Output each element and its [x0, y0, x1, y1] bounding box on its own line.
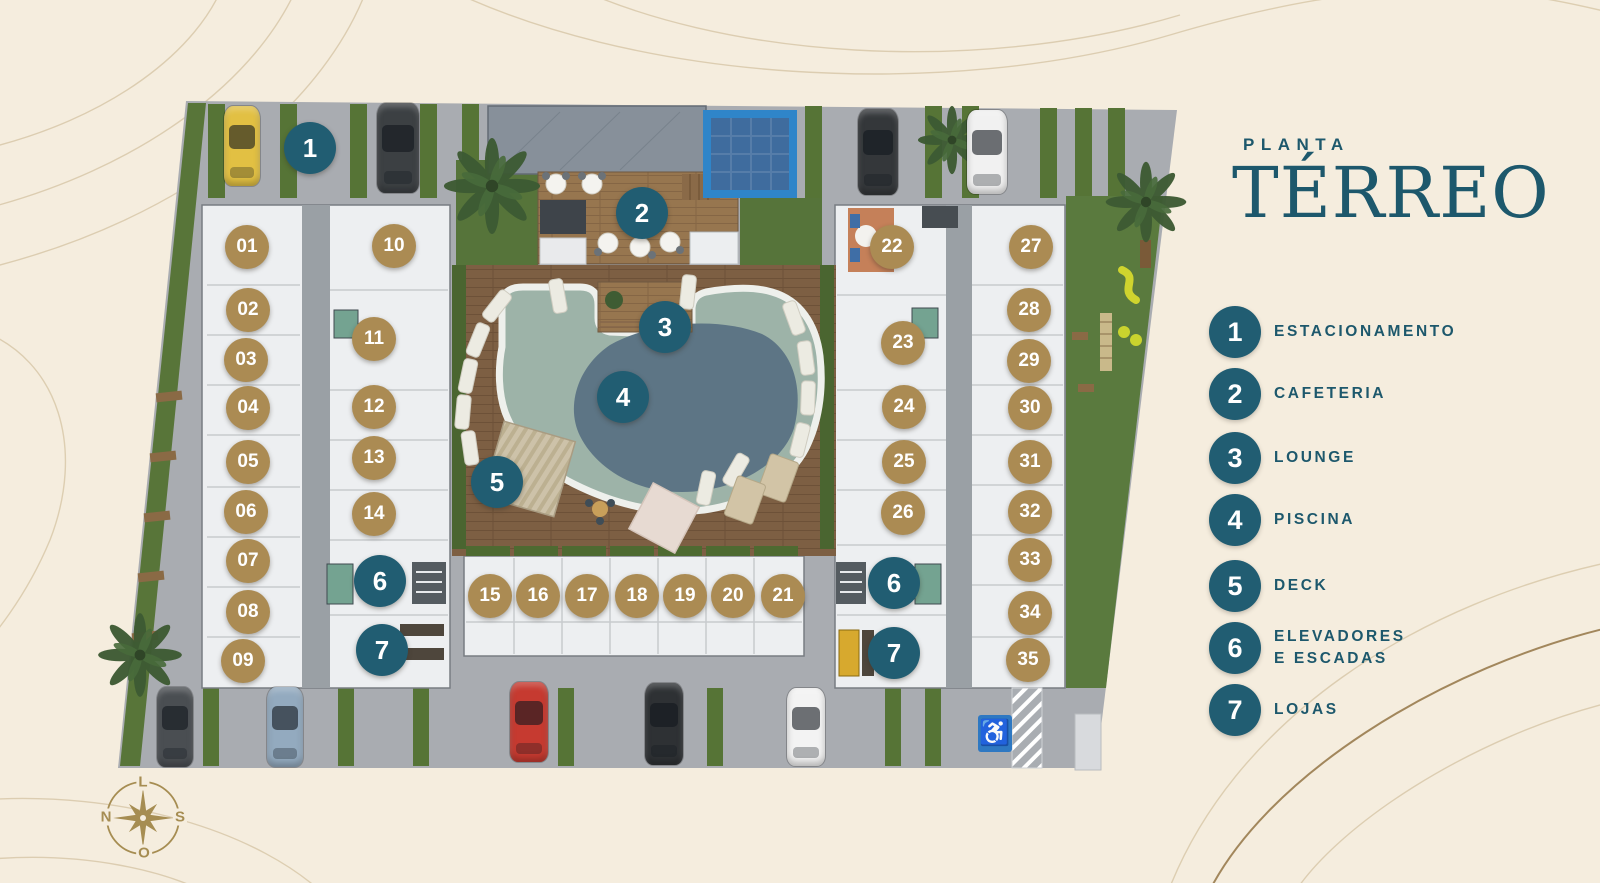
right-lawn: [1066, 196, 1163, 688]
accessible-parking-icon: ♿: [978, 715, 1012, 752]
legend-badge-4: 4: [1209, 494, 1261, 546]
amenity-marker-5-4: 5: [471, 456, 523, 508]
legend-badge-5: 5: [1209, 560, 1261, 612]
unit-marker-15: 15: [468, 574, 512, 618]
unit-marker-22: 22: [870, 225, 914, 269]
compass-rose: [107, 782, 179, 854]
unit-marker-25: 25: [882, 440, 926, 484]
page-title: TÉRREO: [1232, 157, 1550, 231]
unit-marker-27: 27: [1009, 225, 1053, 269]
unit-marker-26: 26: [881, 491, 925, 535]
unit-marker-16: 16: [516, 574, 560, 618]
unit-marker-13: 13: [352, 436, 396, 480]
unit-marker-28: 28: [1007, 288, 1051, 332]
legend-label-5: DECK: [1274, 575, 1328, 597]
unit-marker-33: 33: [1008, 538, 1052, 582]
car-icon: [267, 687, 303, 767]
car-icon: [224, 106, 260, 186]
amenity-marker-6-5: 6: [354, 555, 406, 607]
unit-marker-02: 02: [226, 288, 270, 332]
amenity-marker-1-0: 1: [284, 122, 336, 174]
unit-marker-06: 06: [224, 490, 268, 534]
floorplan-page: L S O N ♿ PLANTA TÉRREO 0102030405060708…: [0, 0, 1600, 883]
legend-badge-2: 2: [1209, 368, 1261, 420]
compass-letter-bottom: O: [136, 845, 152, 862]
unit-marker-07: 07: [226, 539, 270, 583]
unit-marker-14: 14: [352, 492, 396, 536]
unit-marker-20: 20: [711, 574, 755, 618]
unit-marker-05: 05: [226, 440, 270, 484]
legend-item-2: 2CAFETERIA: [1209, 368, 1386, 420]
legend-badge-7: 7: [1209, 684, 1261, 736]
legend-badge-1: 1: [1209, 306, 1261, 358]
unit-marker-10: 10: [372, 224, 416, 268]
unit-marker-01: 01: [225, 225, 269, 269]
legend-item-4: 4PISCINA: [1209, 494, 1355, 546]
unit-marker-34: 34: [1008, 591, 1052, 635]
legend-label-1: ESTACIONAMENTO: [1274, 321, 1456, 343]
unit-marker-12: 12: [352, 385, 396, 429]
compass-letter-top: L: [136, 774, 149, 791]
car-icon: [858, 109, 898, 195]
amenity-marker-3-2: 3: [639, 301, 691, 353]
unit-marker-23: 23: [881, 321, 925, 365]
car-icon: [787, 688, 825, 766]
legend-badge-6: 6: [1209, 622, 1261, 674]
ramp: [1075, 714, 1101, 770]
legend-label-2: CAFETERIA: [1274, 383, 1386, 405]
unit-marker-21: 21: [761, 574, 805, 618]
amenity-marker-4-3: 4: [597, 371, 649, 423]
unit-marker-03: 03: [224, 338, 268, 382]
car-icon: [510, 682, 548, 762]
legend-label-4: PISCINA: [1274, 509, 1355, 531]
unit-marker-19: 19: [663, 574, 707, 618]
compass-letter-left: N: [99, 809, 114, 826]
legend-item-1: 1ESTACIONAMENTO: [1209, 306, 1456, 358]
legend-label-6: ELEVADORESE ESCADAS: [1274, 626, 1406, 670]
amenity-marker-7-8: 7: [868, 627, 920, 679]
unit-marker-31: 31: [1008, 440, 1052, 484]
unit-marker-32: 32: [1008, 490, 1052, 534]
unit-marker-08: 08: [226, 590, 270, 634]
unit-marker-04: 04: [226, 386, 270, 430]
car-icon: [157, 687, 193, 767]
unit-marker-24: 24: [882, 385, 926, 429]
amenity-marker-2-1: 2: [616, 187, 668, 239]
unit-marker-30: 30: [1008, 386, 1052, 430]
spa-pool: [703, 110, 797, 198]
hatched-no-parking-zone: [1012, 688, 1042, 768]
amenity-marker-6-7: 6: [868, 557, 920, 609]
legend-badge-3: 3: [1209, 432, 1261, 484]
car-icon: [377, 103, 419, 193]
car-icon: [645, 683, 683, 765]
unit-marker-09: 09: [221, 639, 265, 683]
car-icon: [967, 110, 1007, 194]
compass-letter-right: S: [173, 809, 187, 826]
legend-item-6: 6ELEVADORESE ESCADAS: [1209, 622, 1406, 674]
legend-label-3: LOUNGE: [1274, 447, 1356, 469]
legend-item-5: 5DECK: [1209, 560, 1328, 612]
unit-marker-17: 17: [565, 574, 609, 618]
unit-marker-11: 11: [352, 317, 396, 361]
legend-item-7: 7LOJAS: [1209, 684, 1339, 736]
unit-marker-29: 29: [1007, 339, 1051, 383]
amenity-marker-7-6: 7: [356, 624, 408, 676]
unit-marker-35: 35: [1006, 638, 1050, 682]
legend-item-3: 3LOUNGE: [1209, 432, 1356, 484]
legend-label-7: LOJAS: [1274, 699, 1339, 721]
unit-marker-18: 18: [615, 574, 659, 618]
